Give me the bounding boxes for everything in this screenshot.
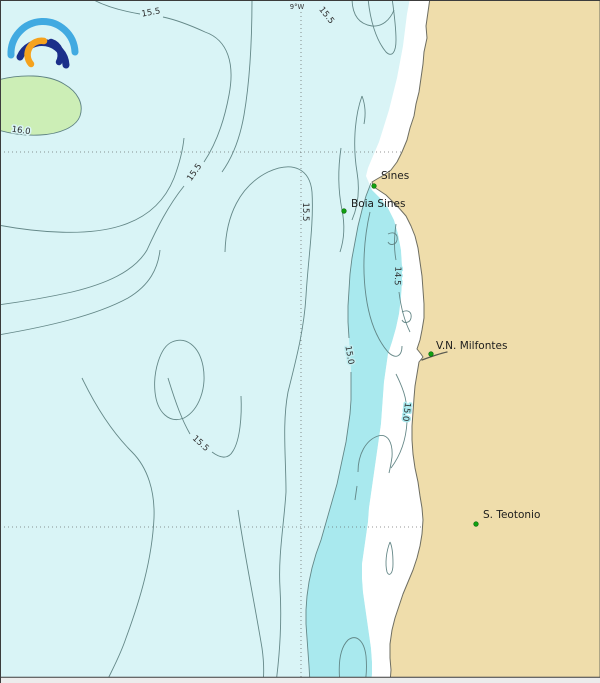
place-dot-sines [372, 184, 377, 189]
contour-label: 14.5 [392, 266, 403, 285]
graticule-lon-label: 9°W [290, 3, 305, 11]
place-label-vn-milfontes: V.N. Milfontes [436, 340, 507, 352]
figure-margin [0, 678, 600, 683]
place-label-s-teotonio: S. Teotonio [483, 509, 540, 521]
place-label-boia-sines: Boia Sines [351, 198, 405, 210]
contour-label: 15.5 [300, 203, 310, 222]
sst-map-figure: 9°W 15.5 15.5 16.0 15.5 15.5 14.5 15.0 1… [0, 0, 600, 683]
place-dot-s-teotonio [474, 522, 479, 527]
place-label-sines: Sines [381, 170, 409, 182]
place-dot-vn-milfontes [429, 352, 434, 357]
place-dot-boia-sines [342, 209, 347, 214]
map-canvas: 9°W 15.5 15.5 16.0 15.5 15.5 14.5 15.0 1… [0, 0, 600, 683]
